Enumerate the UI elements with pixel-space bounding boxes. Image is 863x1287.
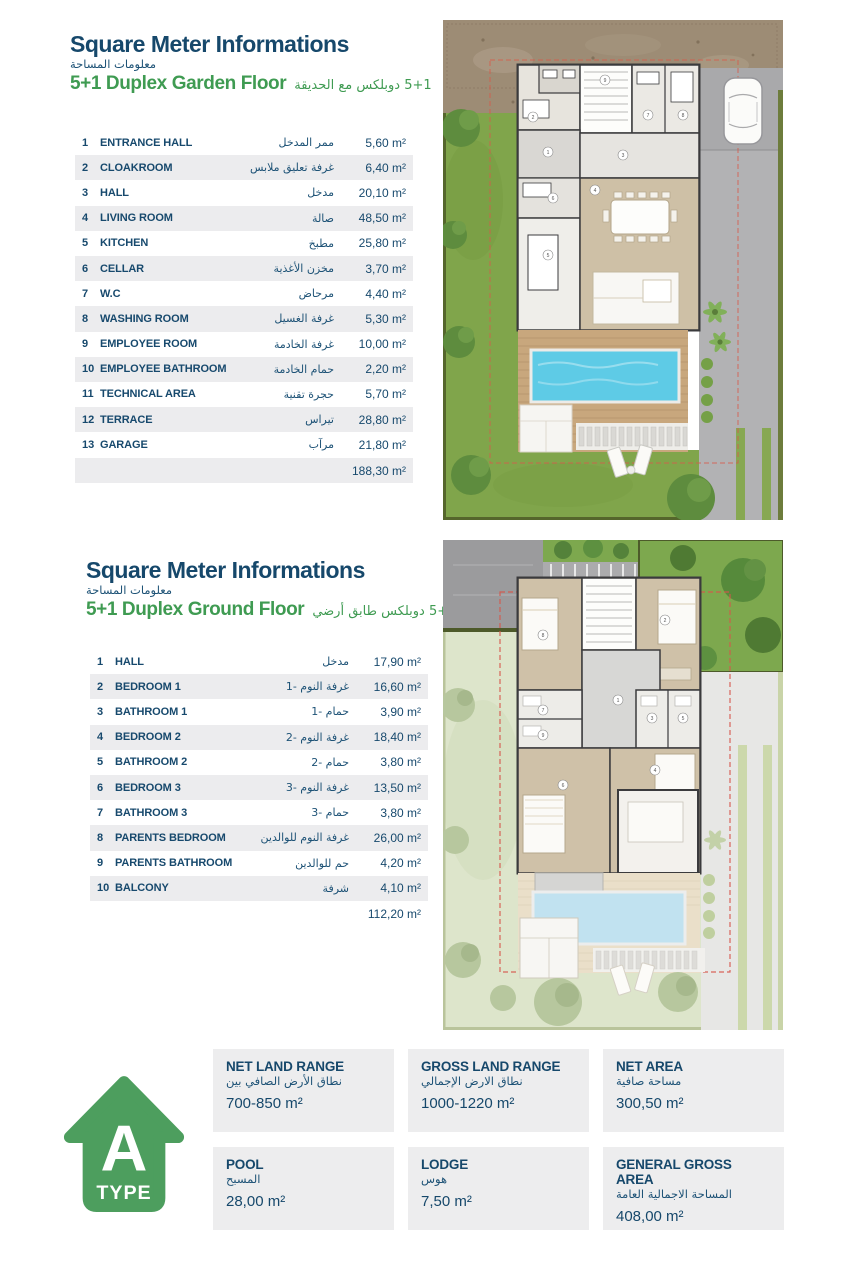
room-name-arabic: صالة [173,212,344,225]
room-name: BATHROOM 1 [115,706,187,718]
svg-text:6: 6 [562,783,565,789]
row-number: 1 [82,137,100,149]
row-number: 5 [97,756,115,768]
summary-value: 408,00 m² [616,1208,771,1225]
svg-text:7: 7 [647,113,650,119]
row-number: 4 [97,731,115,743]
summary-title-arabic: المسبح [226,1172,381,1186]
ground-floor-table: 1 HALL مدخل 17,90 m² 2 BEDROOM 1 غرفة ال… [90,649,428,901]
table-row: 12 TERRACE تيراس 28,80 m² [75,407,413,432]
row-number: 2 [97,681,115,693]
total-area: 188,30 m² [344,464,406,478]
room-name-arabic: غرفة النوم للوالدين [226,831,359,844]
room-area: 21,80 m² [344,438,406,452]
room-name-arabic: مدخل [129,186,344,199]
svg-text:4: 4 [654,768,657,774]
room-area: 5,70 m² [344,387,406,401]
summary-title-arabic: المساحة الاجمالية العامة [616,1187,771,1201]
summary-box: LODGE هوس 7,50 m² [408,1147,589,1230]
summary-box: GENERAL GROSS AREA المساحة الاجمالية الع… [603,1147,784,1230]
garden-floor-total-row: 188,30 m² [75,458,413,483]
type-letter: A [101,1112,148,1185]
faded-driveway [701,672,783,1030]
room-area: 6,40 m² [344,161,406,175]
summary-value: 1000-1220 m² [421,1095,576,1112]
room-name: TERRACE [100,414,152,426]
room-name-arabic: غرفة الخادمة [197,338,344,351]
section2-header: Square Meter Informations معلومات المساح… [86,558,456,621]
room-name-arabic: مرحاض [120,287,344,300]
ground-floor-total-row: 112,20 m² [90,901,428,926]
house-type-icon: A TYPE [60,1072,188,1218]
summary-box: NET LAND RANGE نطاق الأرض الصافي بين 700… [213,1049,394,1132]
section1-title-arabic: معلومات المساحة [70,57,432,71]
total-area: 112,20 m² [359,907,421,921]
row-number: 8 [82,313,100,325]
summary-title-arabic: نطاق الأرض الصافي بين [226,1074,381,1088]
room-name: BATHROOM 2 [115,756,187,768]
garden-floor-plan: 1 2 3 4 5 6 7 8 9 13 [443,20,783,520]
room-area: 10,00 m² [344,337,406,351]
room-name: BALCONY [115,882,169,894]
room-area: 25,80 m² [344,236,406,250]
summary-box: GROSS LAND RANGE نطاق الارض الإجمالي 100… [408,1049,589,1132]
row-number: 1 [97,656,115,668]
table-row: 9 PARENTS BATHROOM حم للوالدين 4,20 m² [90,851,428,876]
room-name-arabic: مدخل [144,655,359,668]
row-number: 10 [97,882,115,894]
table-row: 7 W.C مرحاض 4,40 m² [75,281,413,306]
room-name-arabic: مخزن الأغذية [144,262,344,275]
room-name: W.C [100,288,120,300]
table-row: 3 HALL مدخل 20,10 m² [75,180,413,205]
summary-value: 7,50 m² [421,1193,576,1210]
row-number: 6 [97,782,115,794]
room-name-arabic: غرفة تعليق ملابس [172,161,344,174]
room-name-arabic: غرفة النوم -1 [181,680,359,693]
summary-title: GROSS LAND RANGE [421,1059,576,1074]
room-name: TECHNICAL AREA [100,388,196,400]
row-number: 11 [82,388,100,400]
summary-title-arabic: نطاق الارض الإجمالي [421,1074,576,1088]
summary-boxes: NET LAND RANGE نطاق الأرض الصافي بين 700… [213,1049,784,1230]
section2-title: Square Meter Informations [86,558,456,582]
room-name: BEDROOM 2 [115,731,181,743]
section1-header: Square Meter Informations معلومات المساح… [70,32,432,95]
summary-title: GENERAL GROSS AREA [616,1157,771,1187]
svg-text:3: 3 [651,716,654,722]
table-row: 5 KITCHEN مطبخ 25,80 m² [75,231,413,256]
row-number: 13 [82,439,100,451]
ground-floor-plan: 1 2 3 4 5 6 7 8 9 10 [443,540,783,1030]
svg-text:5: 5 [547,253,550,259]
room-area: 26,00 m² [359,831,421,845]
table-row: 1 ENTRANCE HALL ممر المدخل 5,60 m² [75,130,413,155]
pool-deck [518,330,688,452]
room-area: 5,30 m² [344,312,406,326]
svg-text:8: 8 [542,633,545,639]
table-row: 4 LIVING ROOM صالة 48,50 m² [75,206,413,231]
car-icon [724,78,762,144]
room-name-arabic: غرفة النوم -3 [181,781,359,794]
row-number: 3 [97,706,115,718]
room-name: CELLAR [100,263,144,275]
svg-text:2: 2 [532,115,535,121]
row-number: 12 [82,414,100,426]
room-name-arabic: حمام -3 [187,806,359,819]
room-area: 4,20 m² [359,856,421,870]
room-area: 2,20 m² [344,362,406,376]
brochure-page: Square Meter Informations معلومات المساح… [0,0,863,1287]
row-number: 6 [82,263,100,275]
row-number: 5 [82,237,100,249]
ground-floor-plan-image: 1 2 3 4 5 6 7 8 9 10 [443,540,783,1030]
room-name: ENTRANCE HALL [100,137,192,149]
summary-value: 300,50 m² [616,1095,771,1112]
svg-text:1: 1 [617,698,620,704]
table-row: 13 GARAGE مرآب 21,80 m² [75,432,413,457]
room-name-arabic: حمام -1 [187,705,359,718]
room-name: HALL [115,656,144,668]
table-row: 10 BALCONY شرفة 4,10 m² [90,876,428,901]
svg-text:3: 3 [622,153,625,159]
table-row: 8 WASHING ROOM غرفة الغسيل 5,30 m² [75,306,413,331]
summary-box: NET AREA مساحة صافية 300,50 m² [603,1049,784,1132]
table-row: 3 BATHROOM 1 حمام -1 3,90 m² [90,699,428,724]
room-name-arabic: حمام -2 [187,756,359,769]
room-name: LIVING ROOM [100,212,173,224]
row-number: 7 [82,288,100,300]
room-area: 3,70 m² [344,262,406,276]
room-area: 3,80 m² [359,806,421,820]
svg-text:9: 9 [604,78,607,84]
section1-subtitle-arabic: 5+1 دوبلكس مع الحديقة [294,78,431,93]
summary-value: 28,00 m² [226,1193,381,1210]
room-area: 3,80 m² [359,755,421,769]
table-row: 10 EMPLOYEE BATHROOM حمام الخادمة 2,20 m… [75,357,413,382]
row-number: 8 [97,832,115,844]
table-row: 5 BATHROOM 2 حمام -2 3,80 m² [90,750,428,775]
room-name-arabic: مطبخ [148,237,344,250]
type-word: TYPE [96,1182,151,1204]
garden-floor-table: 1 ENTRANCE HALL ممر المدخل 5,60 m² 2 CLO… [75,130,413,457]
room-name-arabic: حم للوالدين [232,857,359,870]
room-area: 20,10 m² [344,186,406,200]
room-name-arabic: ممر المدخل [192,136,344,149]
room-name: BEDROOM 1 [115,681,181,693]
svg-text:9: 9 [542,733,545,739]
room-area: 3,90 m² [359,705,421,719]
room-name-arabic: حجرة تقنية [196,388,344,401]
row-number: 4 [82,212,100,224]
room-name-arabic: حمام الخادمة [226,363,344,376]
room-name: EMPLOYEE ROOM [100,338,197,350]
room-area: 16,60 m² [359,680,421,694]
svg-text:1: 1 [547,150,550,156]
svg-text:5: 5 [682,716,685,722]
section2-title-arabic: معلومات المساحة [86,583,456,597]
summary-title: LODGE [421,1157,576,1172]
garden-floor-plan-image: 1 2 3 4 5 6 7 8 9 13 [443,20,783,520]
summary-box: POOL المسبح 28,00 m² [213,1147,394,1230]
table-row: 4 BEDROOM 2 غرفة النوم -2 18,40 m² [90,725,428,750]
svg-text:4: 4 [594,188,597,194]
table-row: 6 CELLAR مخزن الأغذية 3,70 m² [75,256,413,281]
summary-title-arabic: مساحة صافية [616,1074,771,1088]
svg-text:6: 6 [552,196,555,202]
section2-subtitle-arabic: 5+1 دوبلكس طابق أرضي [312,604,456,619]
room-name: CLOAKROOM [100,162,172,174]
summary-title: POOL [226,1157,381,1172]
room-name: BEDROOM 3 [115,782,181,794]
room-area: 18,40 m² [359,730,421,744]
row-number: 10 [82,363,100,375]
svg-text:2: 2 [664,618,667,624]
room-area: 5,60 m² [344,136,406,150]
table-row: 2 BEDROOM 1 غرفة النوم -1 16,60 m² [90,674,428,699]
table-row: 8 PARENTS BEDROOM غرفة النوم للوالدين 26… [90,825,428,850]
room-name: GARAGE [100,439,148,451]
summary-title: NET LAND RANGE [226,1059,381,1074]
section2-subtitle: 5+1 Duplex Ground Floor [86,599,304,621]
table-row: 11 TECHNICAL AREA حجرة تقنية 5,70 m² [75,382,413,407]
room-area: 17,90 m² [359,655,421,669]
house-footprint [518,65,699,330]
room-area: 4,40 m² [344,287,406,301]
row-number: 2 [82,162,100,174]
room-name: PARENTS BEDROOM [115,832,226,844]
room-name: EMPLOYEE BATHROOM [100,363,226,375]
room-area: 4,10 m² [359,881,421,895]
room-area: 13,50 m² [359,781,421,795]
summary-title-arabic: هوس [421,1172,576,1186]
row-number: 9 [82,338,100,350]
room-name-arabic: شرفة [169,882,359,895]
room-name-arabic: غرفة الغسيل [189,312,344,325]
section1-title: Square Meter Informations [70,32,432,56]
room-name: PARENTS BATHROOM [115,857,232,869]
summary-title: NET AREA [616,1059,771,1074]
svg-text:7: 7 [542,708,545,714]
table-row: 9 EMPLOYEE ROOM غرفة الخادمة 10,00 m² [75,332,413,357]
table-row: 6 BEDROOM 3 غرفة النوم -3 13,50 m² [90,775,428,800]
room-name-arabic: غرفة النوم -2 [181,731,359,744]
room-name: KITCHEN [100,237,148,249]
room-name-arabic: مرآب [148,438,344,451]
section1-subtitle: 5+1 Duplex Garden Floor [70,73,286,95]
room-name: HALL [100,187,129,199]
table-row: 1 HALL مدخل 17,90 m² [90,649,428,674]
house-footprint [518,578,700,873]
room-name: BATHROOM 3 [115,807,187,819]
row-number: 7 [97,807,115,819]
room-name-arabic: تيراس [152,413,344,426]
table-row: 7 BATHROOM 3 حمام -3 3,80 m² [90,800,428,825]
room-area: 48,50 m² [344,211,406,225]
room-name: WASHING ROOM [100,313,189,325]
room-area: 28,80 m² [344,413,406,427]
row-number: 9 [97,857,115,869]
swimming-pool [531,350,679,402]
svg-text:8: 8 [682,113,685,119]
row-number: 3 [82,187,100,199]
table-row: 2 CLOAKROOM غرفة تعليق ملابس 6,40 m² [75,155,413,180]
summary-value: 700-850 m² [226,1095,381,1112]
type-badge: A TYPE [60,1072,188,1218]
